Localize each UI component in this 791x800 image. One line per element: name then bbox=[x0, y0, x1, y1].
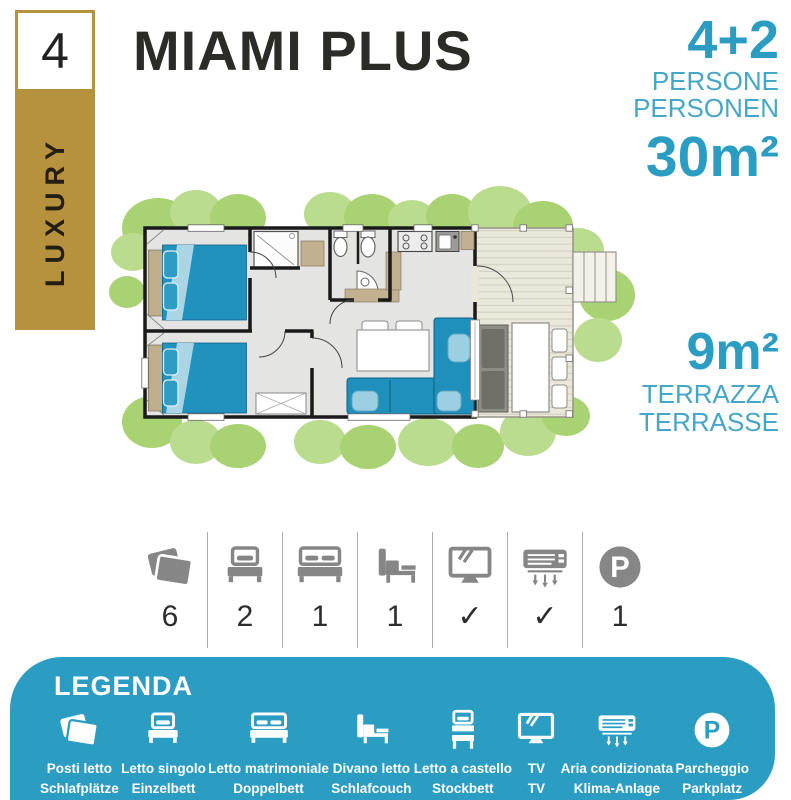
amenity-row: 6 2 1 1 ✓ ✓ 1 bbox=[133, 532, 657, 648]
bunk-bed-icon bbox=[441, 708, 485, 752]
air-conditioning-icon bbox=[519, 541, 571, 593]
terrace-label-de: TERRASSE bbox=[639, 408, 779, 436]
capacity-label-it: PERSONE bbox=[633, 68, 779, 95]
amenity-value: 1 bbox=[612, 599, 629, 635]
page-title: MIAMI PLUS bbox=[133, 18, 473, 83]
amenity-value: ✓ bbox=[532, 599, 557, 635]
floor-plan-drawing bbox=[60, 185, 660, 470]
amenity-double-bed: 1 bbox=[283, 532, 358, 648]
pillows-icon bbox=[144, 541, 196, 593]
wardrobe bbox=[256, 393, 306, 414]
amenity-tv: ✓ bbox=[433, 532, 508, 648]
living-area-value: 30m² bbox=[633, 128, 779, 186]
terrace-table bbox=[512, 323, 549, 412]
legend-title: LEGENDA bbox=[54, 671, 749, 702]
double-bed-icon bbox=[247, 708, 291, 752]
amenity-value: 1 bbox=[312, 599, 329, 635]
double-bed-2 bbox=[149, 343, 247, 413]
terrace-area-value: 9m² bbox=[639, 324, 779, 380]
legend-item-tv: TV TV bbox=[514, 708, 558, 796]
amenity-pillows: 6 bbox=[133, 532, 208, 648]
unit-number: 4 bbox=[15, 10, 95, 92]
amenity-value: ✓ bbox=[457, 599, 482, 635]
amenity-parking: 1 bbox=[583, 532, 657, 648]
sofa-bed-icon bbox=[349, 708, 393, 752]
air-conditioning-icon bbox=[595, 708, 639, 752]
legend-panel: LEGENDA Posti letto Schlafplätze Letto s… bbox=[10, 657, 775, 800]
amenity-value: 2 bbox=[237, 599, 254, 635]
floor-plan bbox=[60, 185, 660, 470]
capacity-block: 4+2 PERSONE PERSONEN 30m² bbox=[633, 12, 779, 186]
capacity-label-de: PERSONEN bbox=[633, 95, 779, 122]
tv-icon bbox=[444, 541, 496, 593]
terrace-label-it: TERRAZZA bbox=[639, 380, 779, 408]
terrace-block: 9m² TERRAZZA TERRASSE bbox=[639, 324, 779, 436]
legend-item-pillows: Posti letto Schlafplätze bbox=[40, 708, 119, 796]
bathroom-cabinet bbox=[301, 241, 324, 266]
single-bed-icon bbox=[141, 708, 185, 752]
legend-item-bunk-bed: Letto a castello Stockbett bbox=[414, 708, 512, 796]
terrace-chairs bbox=[552, 329, 567, 408]
sliding-door bbox=[471, 320, 480, 400]
amenity-single-bed: 2 bbox=[208, 532, 283, 648]
shower bbox=[254, 232, 298, 269]
single-bed-icon bbox=[219, 541, 271, 593]
amenity-value: 1 bbox=[387, 599, 404, 635]
legend-item-parking: Parcheggio Parkplatz bbox=[675, 708, 749, 796]
double-bed-1 bbox=[149, 245, 247, 320]
parking-icon bbox=[594, 541, 646, 593]
amenity-air-conditioning: ✓ bbox=[508, 532, 583, 648]
legend-item-double-bed: Letto matrimoniale Doppelbett bbox=[208, 708, 329, 796]
toilet-2 bbox=[361, 231, 375, 257]
toilet-1 bbox=[334, 231, 347, 257]
pillows-icon bbox=[57, 708, 101, 752]
terrace-bench bbox=[478, 325, 508, 412]
legend-item-sofa-bed: Divano letto Schlafcouch bbox=[331, 708, 411, 796]
parking-icon bbox=[690, 708, 734, 752]
legend-items: Posti letto Schlafplätze Letto singolo E… bbox=[40, 708, 749, 796]
brochure-page: 4 LUXURY MIAMI PLUS 4+2 PERSONE PERSONEN… bbox=[0, 0, 791, 800]
amenity-sofa-bed: 1 bbox=[358, 532, 433, 648]
double-bed-icon bbox=[294, 541, 346, 593]
capacity-value: 4+2 bbox=[633, 12, 779, 68]
legend-item-single-bed: Letto singolo Einzelbett bbox=[121, 708, 206, 796]
amenity-value: 6 bbox=[162, 599, 179, 635]
tv-icon bbox=[514, 708, 558, 752]
sofa-bed-icon bbox=[369, 541, 421, 593]
legend-item-air-conditioning: Aria condizionata Klima-Anlage bbox=[561, 708, 674, 796]
